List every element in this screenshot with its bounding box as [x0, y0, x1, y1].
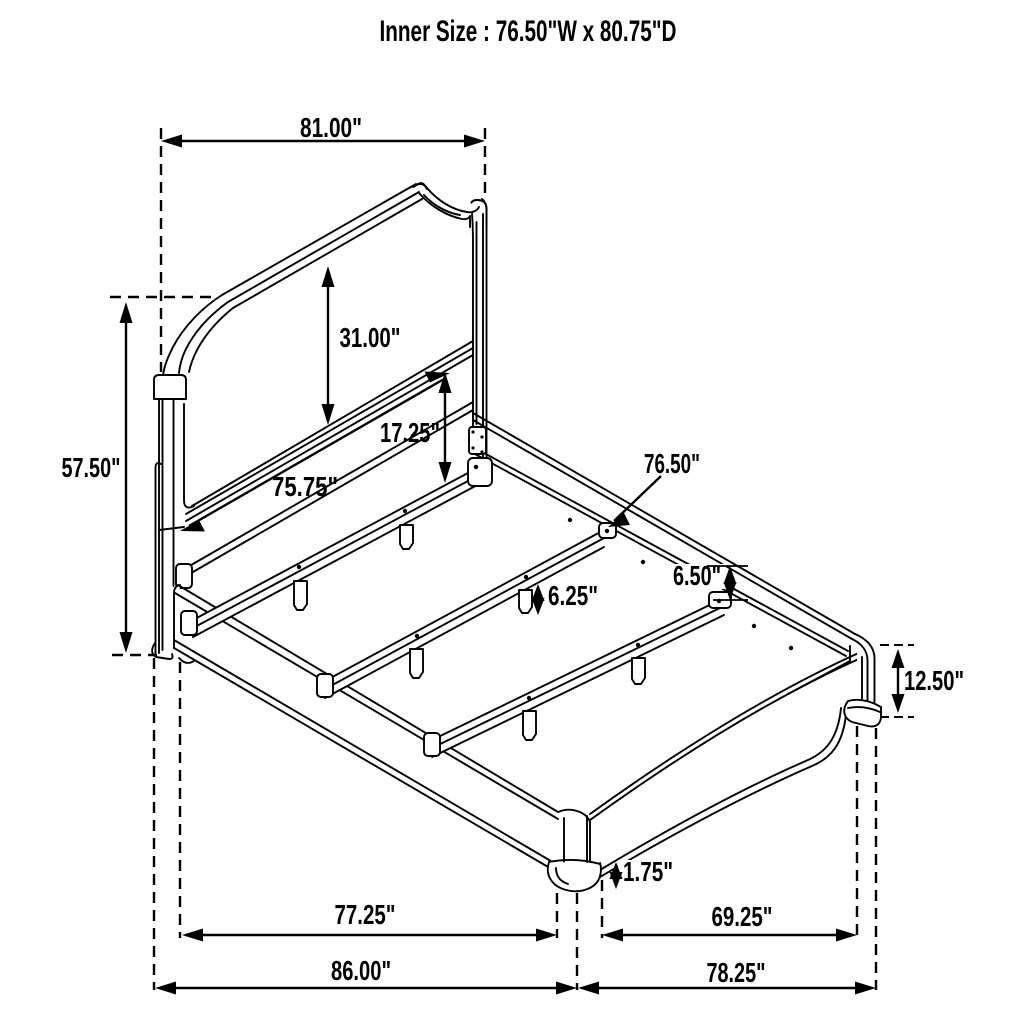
svg-text:6.25": 6.25" — [548, 580, 598, 611]
svg-text:75.75": 75.75" — [272, 471, 338, 502]
svg-text:12.50": 12.50" — [904, 665, 964, 696]
svg-text:78.25": 78.25" — [707, 957, 766, 988]
svg-text:76.50": 76.50" — [644, 448, 700, 479]
svg-text:6.50": 6.50" — [673, 560, 721, 591]
svg-text:69.25": 69.25" — [712, 901, 773, 932]
svg-text:81.00": 81.00" — [300, 112, 362, 143]
svg-text:77.25": 77.25" — [335, 899, 396, 930]
svg-text:17.25": 17.25" — [380, 417, 440, 448]
svg-text:Inner Size : 76.50"W x 80.75"D: Inner Size : 76.50"W x 80.75"D — [380, 15, 677, 48]
svg-text:86.00": 86.00" — [331, 955, 391, 986]
svg-text:57.50": 57.50" — [62, 452, 121, 483]
svg-text:1.75": 1.75" — [623, 856, 673, 887]
svg-text:31.00": 31.00" — [340, 322, 401, 353]
